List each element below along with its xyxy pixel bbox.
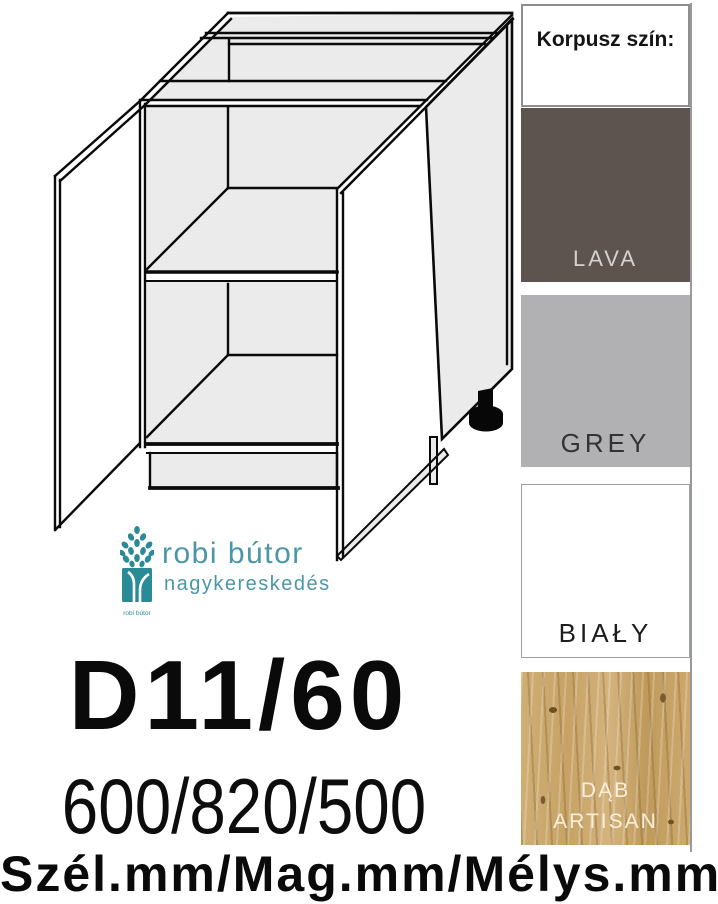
swatch-label-grey: GREY (561, 428, 651, 467)
logo-icon-caption: robi bútor (123, 610, 151, 617)
tree-icon: robi bútor (120, 526, 154, 618)
swatch-dab-artisan: DĄB ARTISAN (521, 672, 690, 845)
sidebar-rule (690, 3, 692, 852)
sidebar-title: Korpusz szín: (537, 28, 675, 52)
dimension-caption: Szél.mm/Mag.mm/Mélys.mm (0, 848, 718, 900)
tree-trunk (122, 568, 152, 602)
sidebar-title-box: Korpusz szín: (521, 4, 690, 107)
swatch-grey: GREY (521, 295, 690, 467)
brand-name: robi bútor (162, 538, 304, 570)
swatch-label-lava: LAVA (573, 246, 638, 282)
product-code: D11/60 (0, 645, 478, 745)
tree-leaves (120, 526, 154, 568)
product-card: robi bútor robi bútor nagykereskedés D11… (0, 0, 718, 904)
swatch-label-dab-artisan: DĄB ARTISAN (541, 776, 671, 845)
swatch-lava: LAVA (521, 108, 690, 282)
brand-subtitle: nagykereskedés (164, 573, 331, 595)
product-dimensions: 600/820/500 (39, 766, 449, 846)
swatch-label-bialy: BIAŁY (559, 618, 653, 657)
cabinet-faces (146, 13, 512, 560)
brand-logo: robi bútor robi bútor nagykereskedés (114, 524, 344, 620)
swatch-bialy: BIAŁY (521, 484, 690, 658)
